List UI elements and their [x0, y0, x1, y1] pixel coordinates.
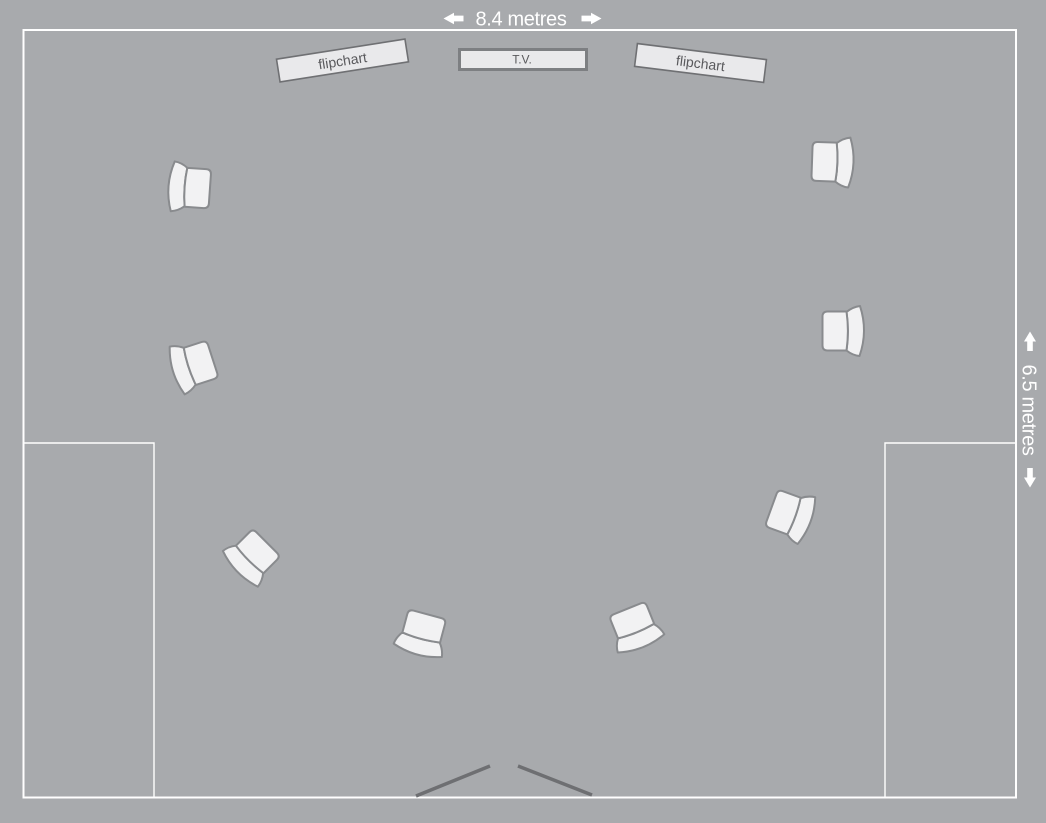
svg-text:T.V.: T.V.: [512, 53, 532, 67]
svg-text:6.5 metres: 6.5 metres: [1018, 365, 1040, 456]
svg-text:8.4 metres: 8.4 metres: [476, 8, 567, 30]
